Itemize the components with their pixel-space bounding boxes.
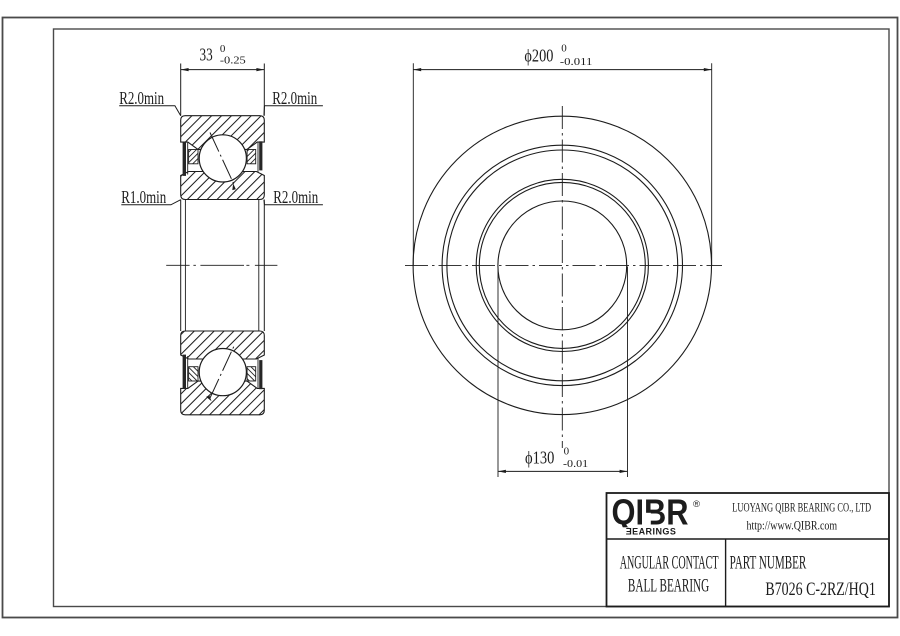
svg-text:0: 0 — [220, 43, 226, 55]
svg-text:ANGULAR CONTACT: ANGULAR CONTACT — [620, 552, 719, 573]
svg-text:0: 0 — [564, 446, 570, 458]
svg-text:-0.01: -0.01 — [563, 457, 588, 469]
svg-text:33: 33 — [200, 46, 213, 65]
svg-text:0: 0 — [561, 43, 567, 55]
svg-text:®: ® — [693, 499, 700, 510]
svg-text:-0.25: -0.25 — [220, 54, 246, 66]
svg-text:-0.011: -0.011 — [560, 55, 593, 68]
svg-text:LUOYANG QIBR BEARING CO., LTD: LUOYANG QIBR BEARING CO., LTD — [732, 502, 871, 515]
svg-text:ϕ200: ϕ200 — [524, 45, 553, 66]
svg-text:BALL BEARING: BALL BEARING — [628, 575, 709, 596]
svg-text:ϕ130: ϕ130 — [525, 447, 554, 468]
svg-text:B7026 C-2RZ/HQ1: B7026 C-2RZ/HQ1 — [765, 578, 875, 600]
svg-text:PART NUMBER: PART NUMBER — [730, 552, 807, 573]
svg-text:ƎEARINGS: ƎEARINGS — [626, 527, 677, 537]
svg-text:http://www.QIBR.com: http://www.QIBR.com — [747, 520, 838, 533]
